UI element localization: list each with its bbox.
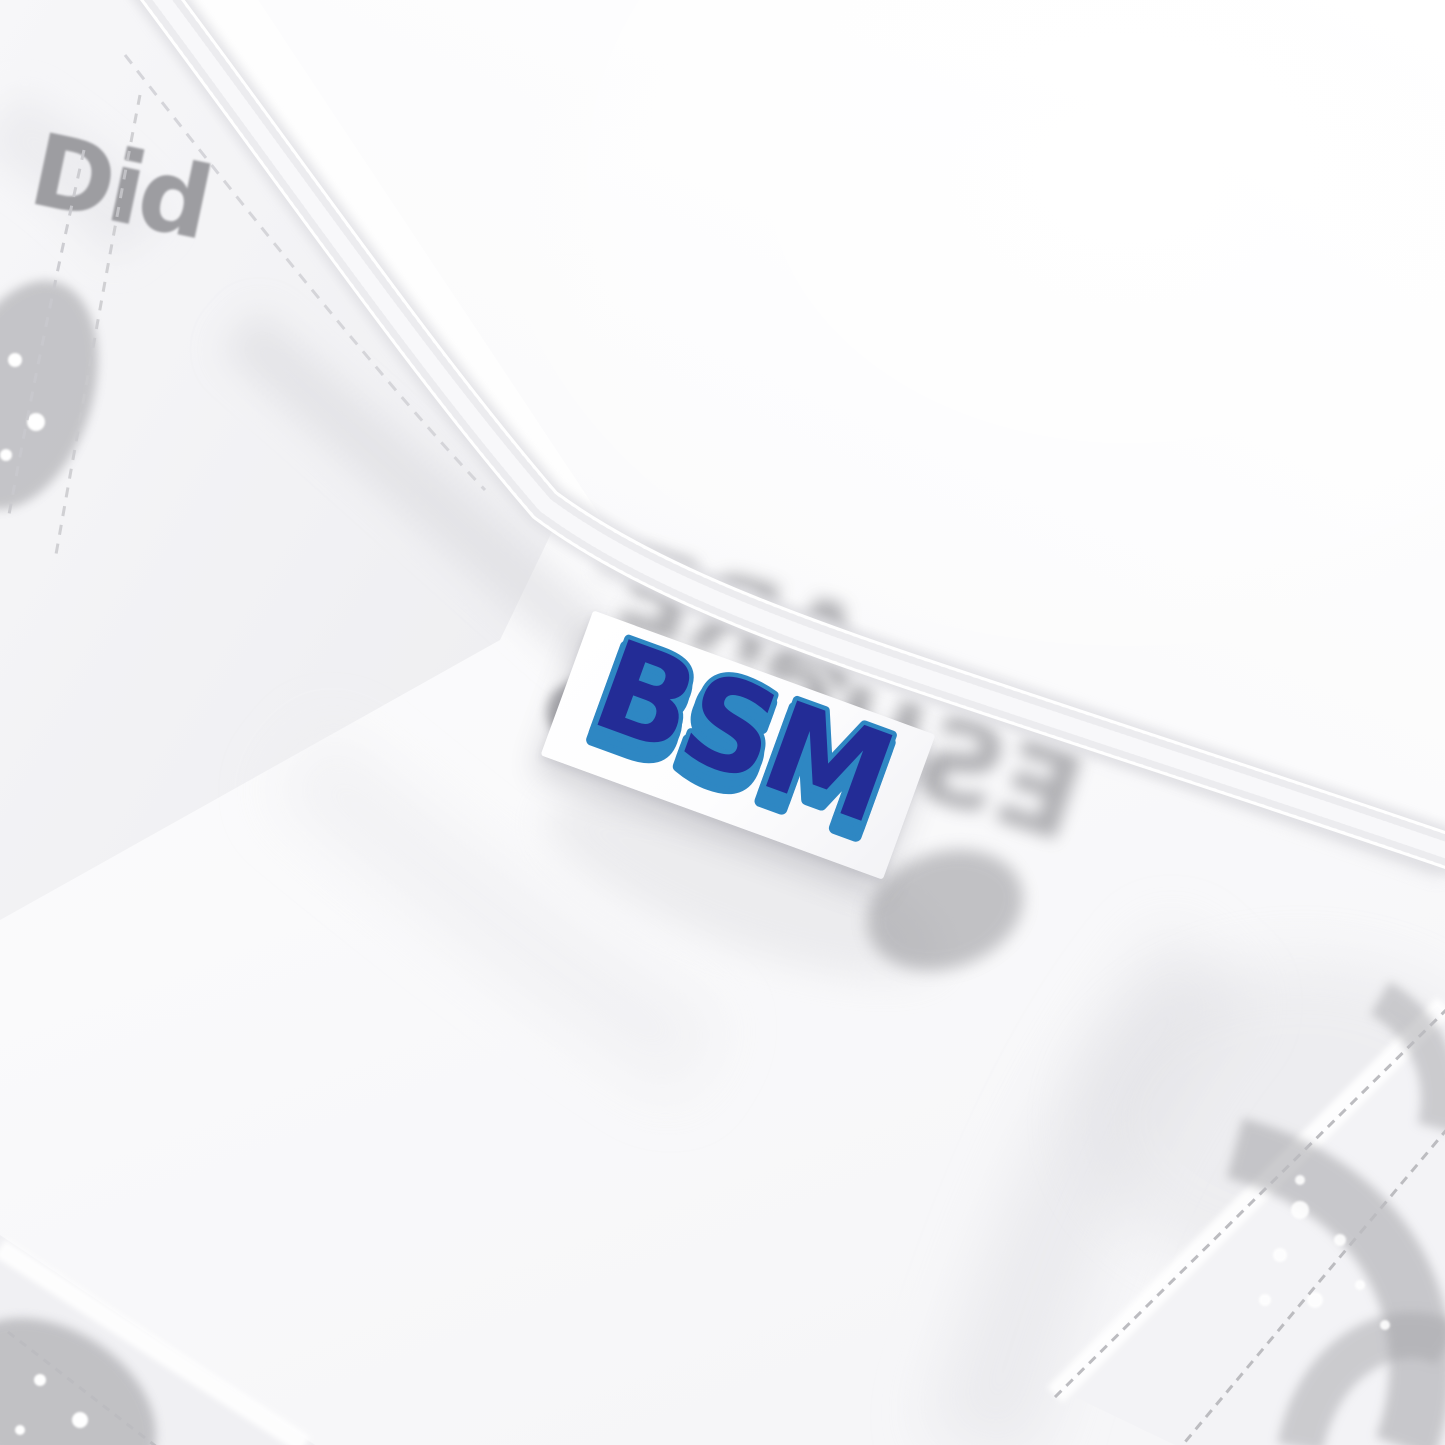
- product-photo: ¿ ARE ESUS Did: [0, 0, 1445, 1445]
